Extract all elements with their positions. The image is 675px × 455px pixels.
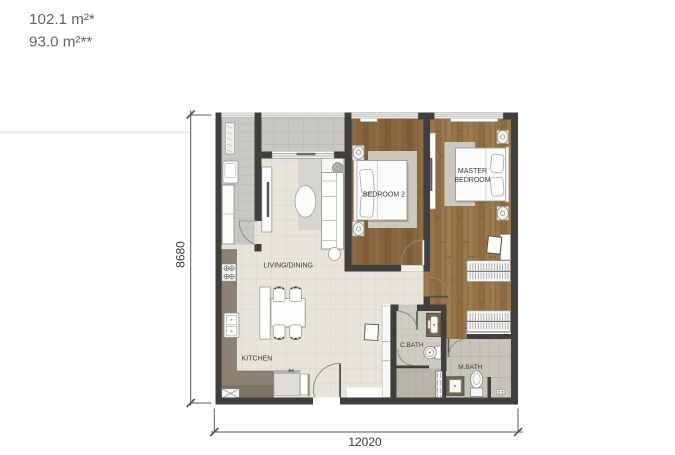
svg-text:LIVING/DINING: LIVING/DINING — [264, 262, 313, 269]
svg-text:102.1 m²*: 102.1 m²* — [29, 11, 95, 28]
svg-text:KITCHEN: KITCHEN — [242, 355, 273, 362]
svg-text:BEDROOM: BEDROOM — [454, 177, 490, 184]
svg-text:C.BATH: C.BATH — [400, 342, 424, 349]
svg-text:93.0 m²**: 93.0 m²** — [29, 34, 92, 51]
svg-text:BEDROOM 2: BEDROOM 2 — [363, 191, 405, 198]
svg-text:M.BATH: M.BATH — [458, 364, 483, 371]
svg-text:12020: 12020 — [348, 435, 382, 449]
svg-text:8680: 8680 — [174, 241, 188, 268]
svg-text:MASTER: MASTER — [458, 168, 487, 175]
